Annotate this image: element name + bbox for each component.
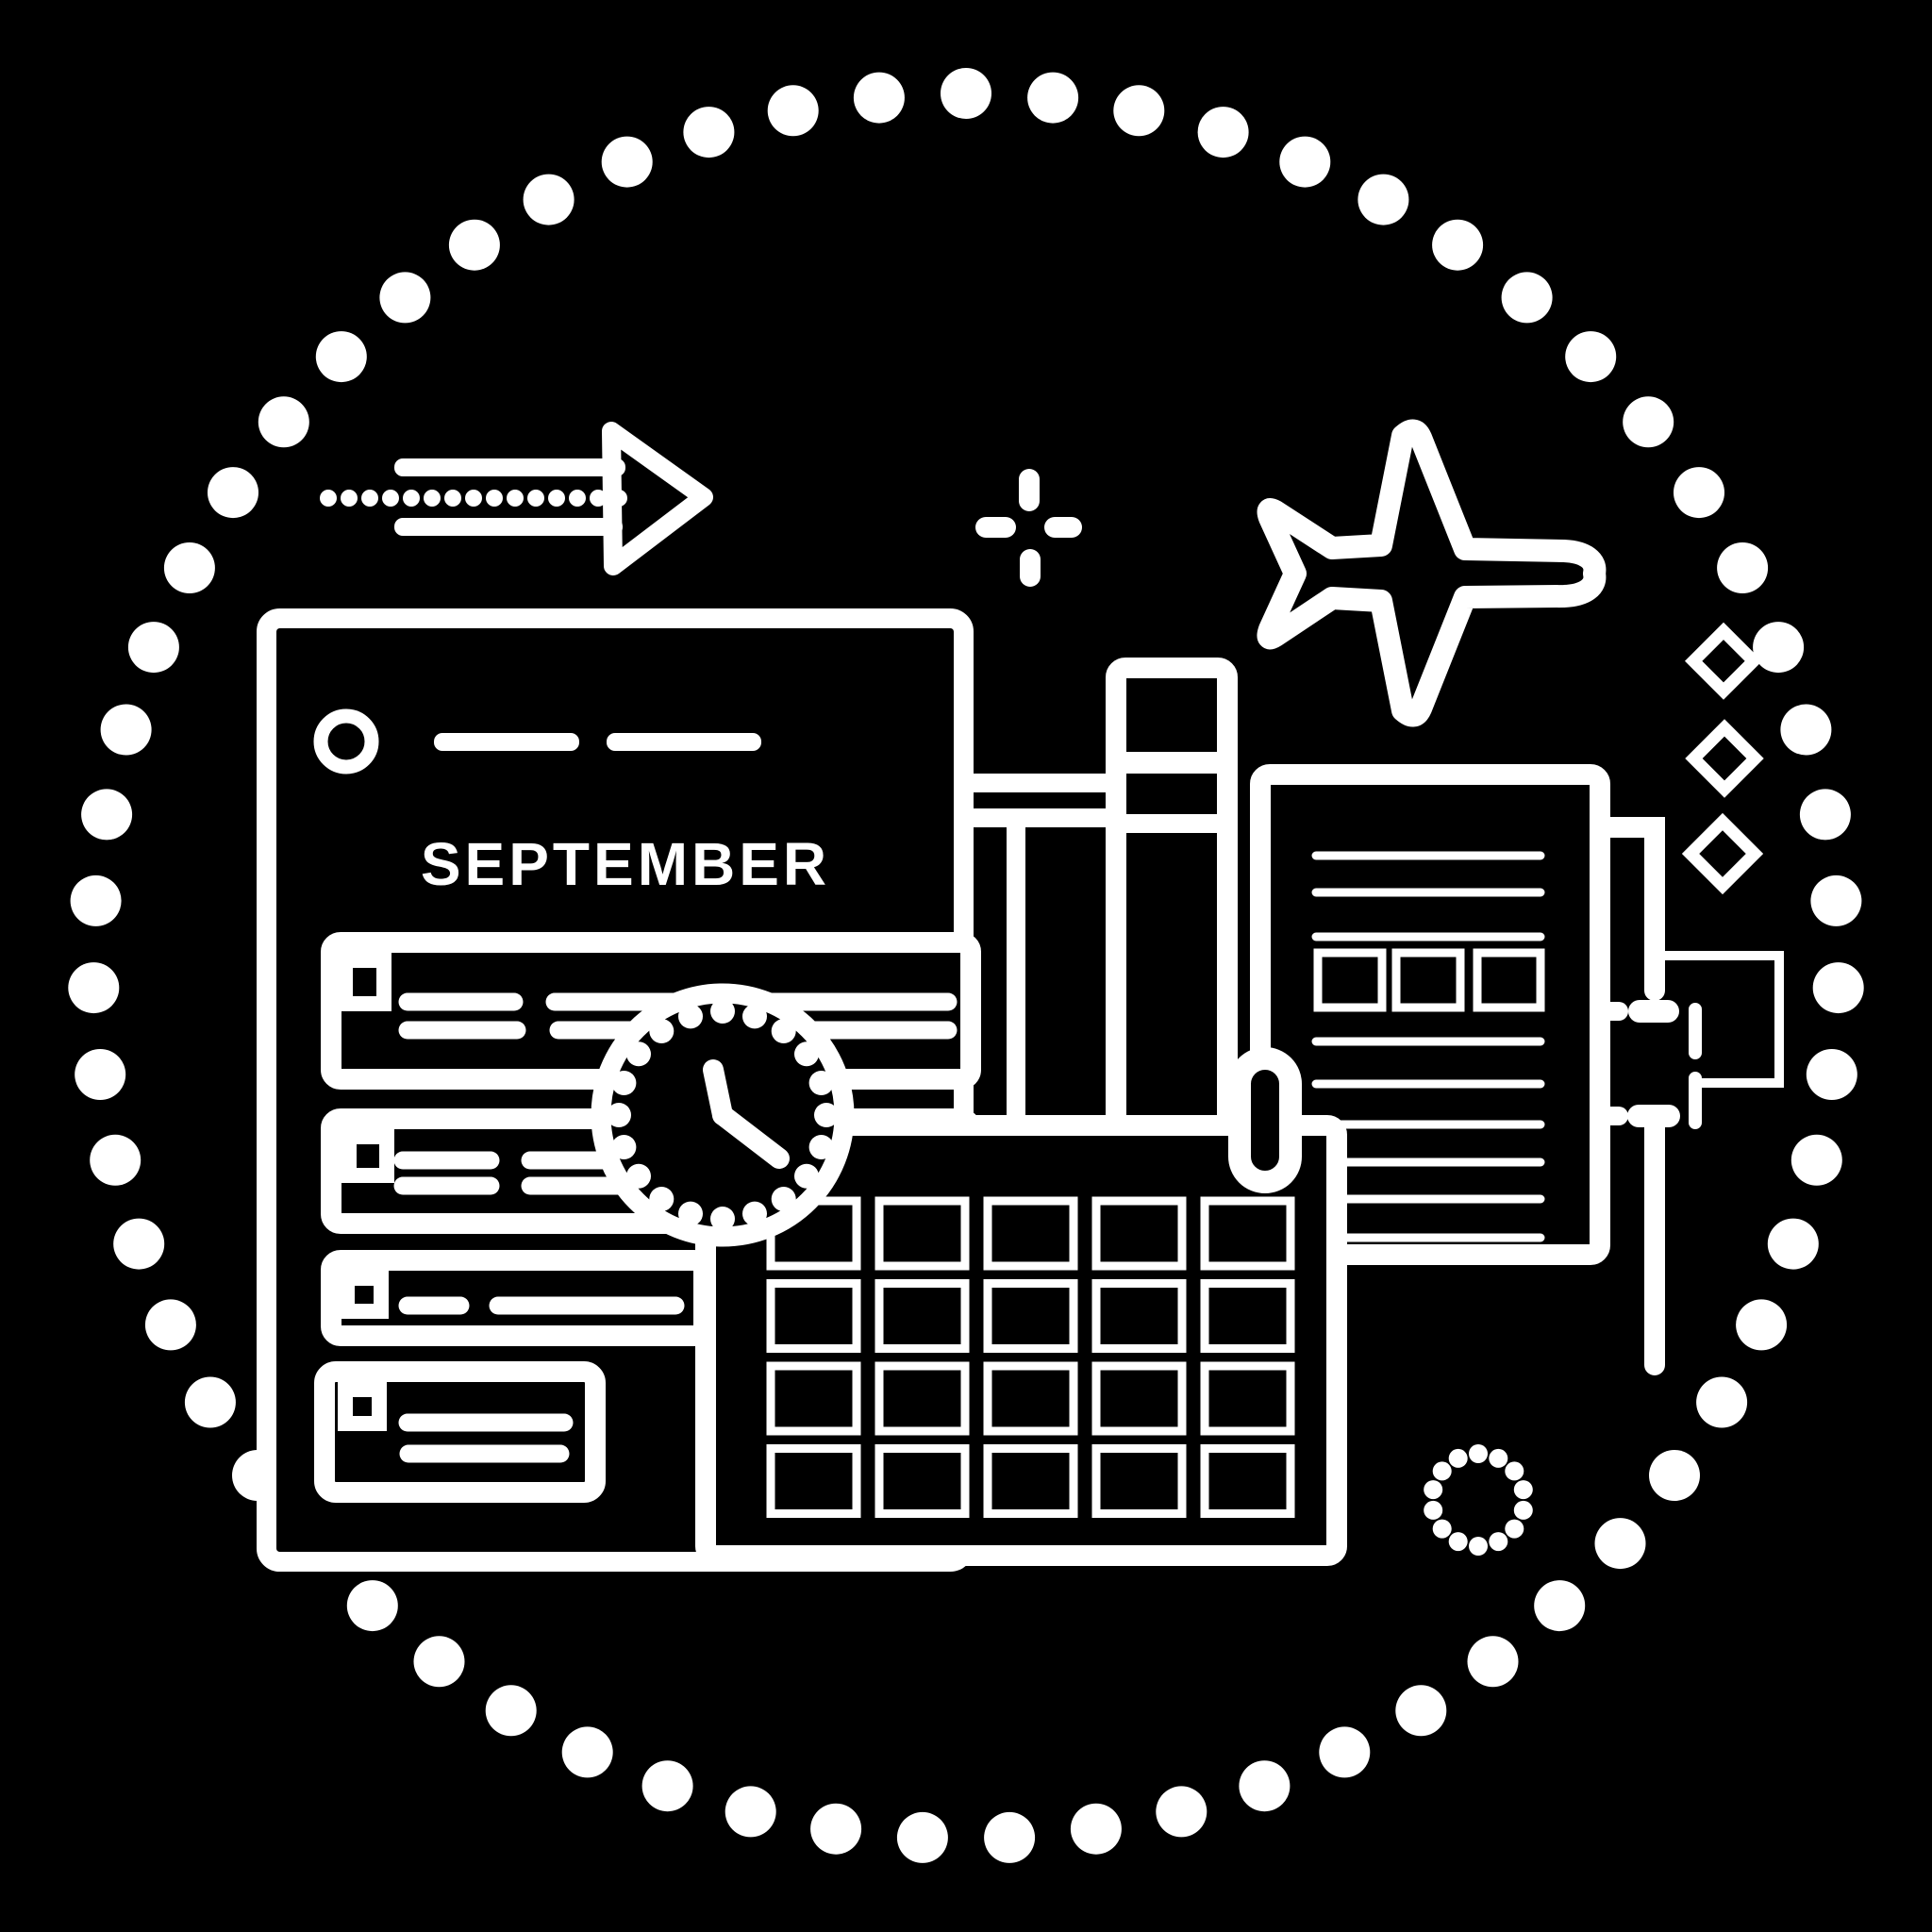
hanger-bar-1 [1628,1000,1679,1023]
diamond-icon [1690,822,1755,886]
hanger-bar-2 [1627,1105,1680,1127]
diamonds [1690,631,1755,886]
page-header-dash-1 [434,733,579,751]
tag-bracket-icon [1662,956,1779,1083]
airplane-icon [1268,430,1594,715]
diamond-icon [1693,727,1755,789]
month-label: SEPTEMBER [421,830,830,898]
book-spine-band-top [974,774,1106,792]
paper-clip-icon [1240,1058,1291,1182]
illustration-canvas: SEPTEMBER [0,0,1932,1932]
plus-crosshair-icon [975,469,1082,587]
book-tall-band-1 [1106,752,1238,774]
arrow-top-bar [394,458,625,476]
book-tall-band-2 [1106,814,1238,833]
page-header-dash-2 [607,733,761,751]
dashed-arrow-right-icon [320,431,704,566]
book-spine-stripe [1007,827,1025,1132]
checklist-row-icon [325,1372,595,1492]
clipboard-hanger [1604,827,1655,1365]
clock-icon [601,993,844,1237]
small-dotted-circle-icon [1424,1444,1533,1556]
book-spine-band [974,808,1106,827]
arrow-bottom-bar [394,518,623,536]
arrow-dotted-tail [320,490,627,507]
diamond-icon [1693,631,1754,691]
book-tall-outline [1116,668,1227,1132]
books-icon [974,668,1238,1132]
checklist-row-icon [331,1260,704,1336]
